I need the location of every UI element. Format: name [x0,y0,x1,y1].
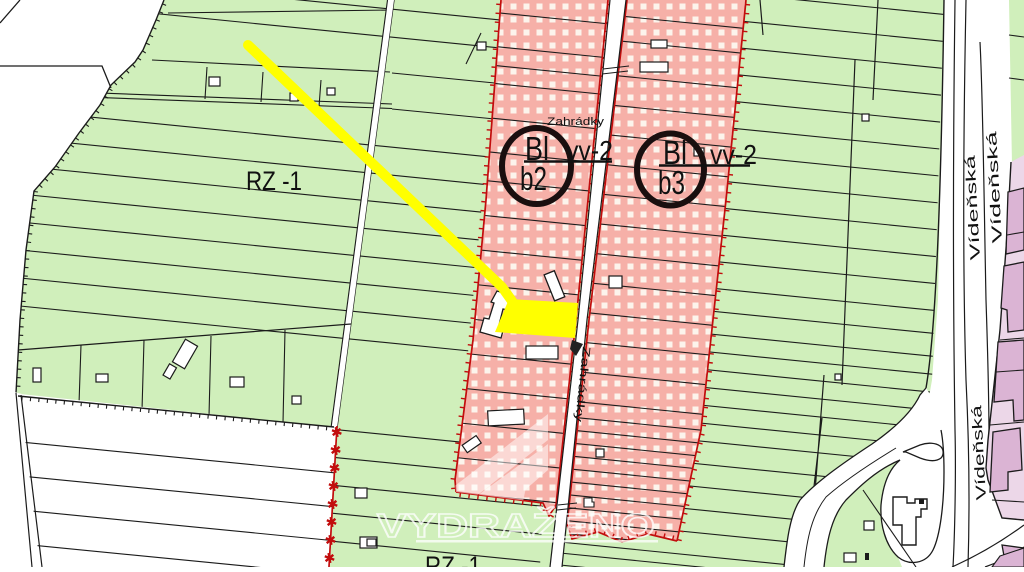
svg-text:VYDRAŽENO: VYDRAŽENO [377,507,655,544]
svg-text:RZ -1: RZ -1 [246,166,302,196]
svg-text:Zahrádky: Zahrádky [547,116,605,128]
svg-text:RZ -1: RZ -1 [425,551,481,567]
svg-text:b3: b3 [658,164,685,201]
svg-text:vv-2: vv-2 [566,135,613,166]
svg-text:b2: b2 [520,160,547,197]
svg-text:vv-2: vv-2 [710,139,757,170]
